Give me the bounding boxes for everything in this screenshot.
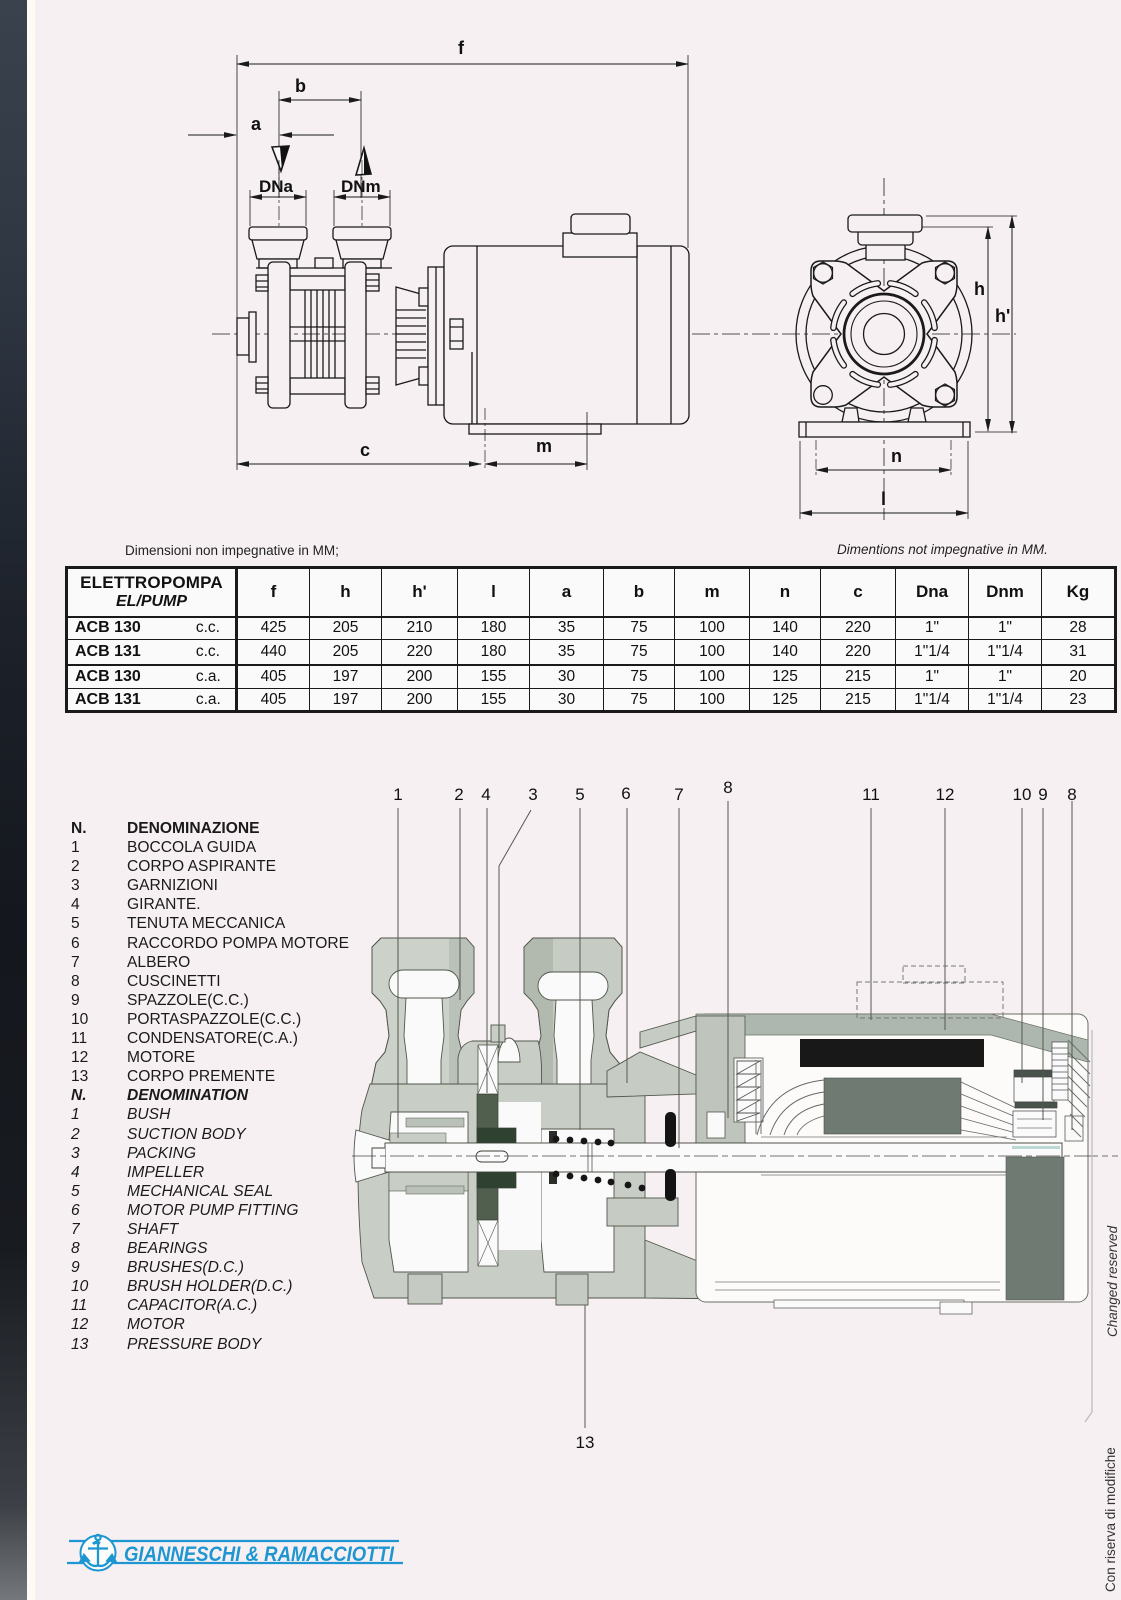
svg-text:4: 4	[481, 785, 490, 804]
svg-text:5: 5	[575, 785, 584, 804]
svg-text:GIANNESCHI & RAMACCIOTTI: GIANNESCHI & RAMACCIOTTI	[124, 1542, 395, 1566]
svg-text:7: 7	[674, 785, 683, 804]
svg-text:10: 10	[1013, 785, 1032, 804]
svg-text:8: 8	[723, 778, 732, 797]
svg-text:11: 11	[862, 785, 880, 804]
svg-text:1: 1	[393, 785, 402, 804]
svg-text:6: 6	[621, 784, 630, 803]
svg-text:2: 2	[454, 785, 463, 804]
svg-text:12: 12	[936, 785, 955, 804]
svg-text:3: 3	[528, 785, 537, 804]
svg-text:9: 9	[1038, 785, 1047, 804]
svg-text:13: 13	[576, 1433, 595, 1452]
